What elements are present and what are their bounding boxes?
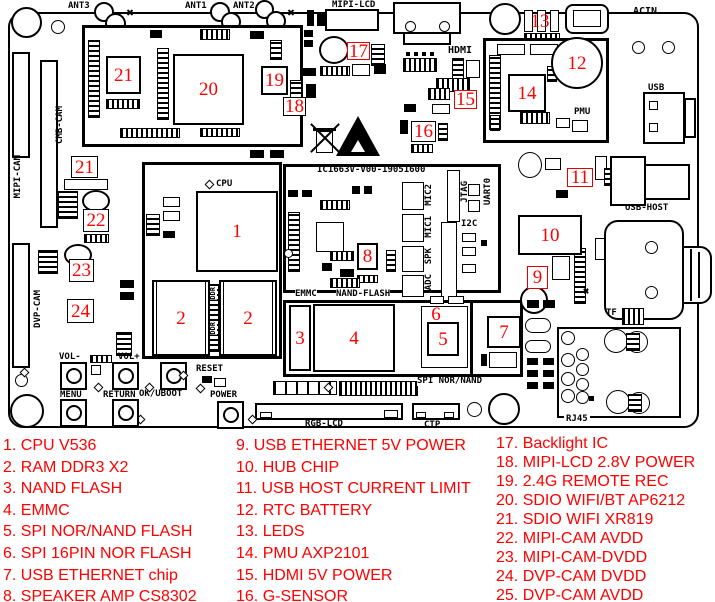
pad-strip bbox=[270, 40, 282, 60]
legend-item: 4. EMMC bbox=[3, 500, 197, 522]
dvp-cam-label: DVP-CAM bbox=[34, 290, 43, 328]
usb-pin bbox=[649, 123, 658, 132]
marker-23: 23 bbox=[69, 259, 94, 282]
legend-item: 9. USB ETHERNET 5V POWER bbox=[236, 435, 471, 457]
mipi-lcd-connector bbox=[325, 9, 379, 31]
legend-item: 13. LEDS bbox=[236, 521, 471, 543]
legend-column-2: 9. USB ETHERNET 5V POWER10. HUB CHIP11. … bbox=[236, 435, 471, 602]
connector bbox=[441, 222, 457, 302]
mic2-connector bbox=[402, 182, 424, 210]
pad-block bbox=[468, 184, 480, 196]
pad-strip bbox=[320, 66, 350, 76]
pad-strip bbox=[371, 44, 385, 66]
pad-block bbox=[468, 200, 480, 212]
legend-item: 19. 2.4G REMOTE REC bbox=[496, 472, 695, 491]
esd-triangle-inner bbox=[351, 140, 365, 152]
pad-block bbox=[352, 64, 370, 76]
rj45-pin bbox=[561, 353, 575, 367]
button-return bbox=[112, 399, 139, 427]
pad-block bbox=[489, 352, 517, 368]
pad-strip bbox=[628, 394, 642, 412]
mic1-connector bbox=[402, 214, 424, 242]
pad-strip bbox=[320, 200, 350, 210]
marker-15: 15 bbox=[454, 90, 477, 109]
connector-key bbox=[384, 410, 398, 418]
chip-hub: 10 bbox=[518, 215, 582, 255]
divider bbox=[470, 300, 473, 377]
pad-strip bbox=[490, 115, 500, 131]
pad-block bbox=[214, 378, 226, 387]
legend-column-1: 1. CPU V5362. RAM DDR3 X23. NAND FLASH4.… bbox=[3, 435, 197, 602]
ddr-label: DDR bbox=[210, 322, 217, 335]
pad bbox=[302, 190, 312, 197]
mipi-cam-label: MIPI-CAM bbox=[14, 155, 23, 198]
rj45-pin bbox=[576, 391, 589, 404]
ok-uboot-label: OK/UBOOT bbox=[139, 390, 182, 399]
pad bbox=[400, 120, 408, 134]
pad bbox=[302, 68, 316, 76]
pad-strip bbox=[626, 333, 640, 351]
pad-strip bbox=[88, 40, 100, 118]
pad-strip bbox=[438, 123, 448, 141]
x-mark-icon bbox=[583, 288, 589, 294]
pad-block bbox=[432, 104, 450, 114]
rj45-pin bbox=[576, 378, 589, 391]
marker-9: 9 bbox=[527, 266, 548, 289]
ddr-label: DDR bbox=[210, 287, 217, 300]
chip-usb-ethernet: 7 bbox=[487, 316, 521, 348]
reset-label: RESET bbox=[196, 365, 223, 374]
legend-item: 15. HDMI 5V POWER bbox=[236, 565, 471, 587]
marker-24: 24 bbox=[67, 299, 94, 323]
legend-item: 21. SDIO WIFI XR819 bbox=[496, 510, 695, 529]
uart0-label: UART0 bbox=[484, 178, 493, 205]
button-menu bbox=[60, 399, 87, 427]
pad-strip bbox=[90, 355, 112, 363]
pad bbox=[422, 52, 426, 56]
transformer bbox=[606, 390, 630, 414]
button-volume-down bbox=[60, 362, 87, 390]
legend-item: 6. SPI 16PIN NOR FLASH bbox=[3, 543, 197, 565]
cpu-label: CPU bbox=[216, 180, 232, 189]
legend-item: 17. Backlight IC bbox=[496, 434, 695, 453]
pad-block bbox=[462, 247, 476, 256]
rtc-battery: 12 bbox=[551, 37, 603, 89]
ant1-label: ANT1 bbox=[185, 2, 207, 11]
spk-connector bbox=[402, 246, 424, 272]
screw-hole bbox=[662, 41, 675, 54]
pad-block bbox=[545, 158, 561, 170]
legend-item: 7. USB ETHERNET chip bbox=[3, 565, 197, 587]
mic1-label: MIC1 bbox=[425, 216, 434, 238]
pad bbox=[543, 358, 554, 365]
pad-strip bbox=[157, 48, 169, 120]
adc-connector bbox=[402, 275, 424, 297]
camera-connector bbox=[12, 243, 30, 368]
legend-item: 5. SPI NOR/NAND FLASH bbox=[3, 521, 197, 543]
legend-item: 14. PMU AXP2101 bbox=[236, 543, 471, 565]
marker-11: 11 bbox=[567, 168, 593, 187]
chip-remote-rec: 19 bbox=[261, 66, 288, 95]
pad bbox=[288, 190, 298, 197]
legend-item: 12. RTC BATTERY bbox=[236, 500, 471, 522]
mounting-hole bbox=[488, 393, 520, 425]
chip-cpu: 1 bbox=[196, 191, 278, 272]
vol-plus-label: VOL+ bbox=[118, 353, 140, 362]
pad-block bbox=[466, 60, 480, 78]
legend-item: 24. DVP-CAM DVDD bbox=[496, 567, 695, 586]
pad-block bbox=[448, 296, 464, 304]
usb-host-port bbox=[610, 156, 646, 206]
pad bbox=[120, 292, 134, 300]
pad bbox=[406, 52, 410, 56]
via bbox=[284, 249, 293, 258]
barrel-line bbox=[698, 252, 700, 298]
chip-wifi-xr819: 21 bbox=[106, 56, 141, 94]
rj45-label: RJ45 bbox=[564, 415, 590, 424]
emmc-label: EMMC bbox=[295, 290, 317, 299]
usb-pin bbox=[649, 101, 658, 110]
cmb-cam-label: CMB-CAM bbox=[56, 106, 65, 144]
pad bbox=[481, 354, 487, 366]
led bbox=[525, 340, 551, 353]
hdmi-label: HDMI bbox=[448, 46, 472, 56]
pad-strip bbox=[428, 88, 450, 100]
chip bbox=[316, 222, 344, 252]
pad bbox=[364, 186, 372, 194]
pad-strip bbox=[120, 128, 180, 138]
pad bbox=[374, 64, 386, 74]
pad-strip bbox=[411, 144, 433, 153]
jtag-connector bbox=[447, 170, 460, 222]
camera-connector bbox=[12, 52, 30, 158]
chip-nand-flash: 3 bbox=[289, 305, 311, 371]
pad-strip bbox=[106, 99, 140, 109]
spk-label: SPK bbox=[425, 248, 434, 264]
pad-strip bbox=[146, 214, 160, 236]
legend-item: 2. RAM DDR3 X2 bbox=[3, 457, 197, 479]
pad bbox=[250, 150, 264, 158]
acin-jack-inner bbox=[573, 10, 601, 27]
audio-jack-hole bbox=[645, 286, 658, 299]
pad bbox=[304, 40, 313, 47]
button-volume-up bbox=[112, 362, 139, 390]
pad-block bbox=[552, 256, 570, 280]
pad bbox=[543, 382, 554, 389]
connector-key bbox=[416, 412, 426, 418]
nand-flash-label: NAND-FLASH bbox=[336, 290, 390, 299]
usb-port-tab bbox=[684, 98, 696, 138]
legend-item: 18. MIPI-LCD 2.8V POWER bbox=[496, 453, 695, 472]
screw-hole bbox=[632, 41, 645, 54]
chip-wifi-ap6212: 20 bbox=[173, 54, 244, 125]
pad-block bbox=[497, 44, 525, 55]
adc-label: ADC bbox=[425, 274, 434, 290]
pad-strip bbox=[200, 128, 240, 137]
pad-strip bbox=[403, 58, 437, 72]
pad-block bbox=[163, 197, 180, 207]
pad bbox=[527, 300, 539, 308]
pad bbox=[120, 280, 134, 288]
rj45-pin bbox=[561, 389, 575, 403]
pad bbox=[430, 52, 434, 56]
board-id-text: IC1663V-V00-19051600 bbox=[317, 166, 425, 175]
chip-pmu-axp2101: 14 bbox=[508, 74, 546, 112]
pad-block bbox=[595, 238, 605, 260]
button-power bbox=[217, 401, 244, 429]
pad bbox=[527, 370, 538, 377]
pad-block bbox=[462, 233, 476, 242]
pad-strip bbox=[520, 112, 550, 124]
legend-item: 20. SDIO WIFI/BT AP6212 bbox=[496, 491, 695, 510]
mounting-hole bbox=[467, 402, 482, 417]
legend-item: 1. CPU V536 bbox=[3, 435, 197, 457]
pad-strip bbox=[58, 191, 78, 219]
pad bbox=[150, 30, 162, 38]
pad-block bbox=[64, 179, 108, 190]
pad bbox=[481, 240, 487, 246]
pad-row bbox=[339, 381, 418, 396]
pad bbox=[306, 84, 316, 98]
pad bbox=[404, 104, 416, 112]
legend-item: 25. DVP-CAM AVDD bbox=[496, 586, 695, 602]
connector-key bbox=[444, 412, 454, 418]
pad-strip bbox=[288, 212, 300, 272]
rgb-lcd-connector bbox=[255, 403, 403, 420]
chip-ram-ddr3: 2 bbox=[152, 280, 210, 356]
pad bbox=[589, 396, 594, 401]
marker-13: 13 bbox=[526, 11, 554, 31]
pcb-diagram: ANT3 ANT1 ANT2 21 20 19 18 CMB-CAM MIPI-… bbox=[0, 0, 715, 602]
audio-jack-hole bbox=[645, 241, 658, 254]
pad-block bbox=[572, 120, 588, 132]
marker-16: 16 bbox=[411, 121, 436, 142]
pad-strip bbox=[524, 33, 560, 39]
legend-item: 3. NAND FLASH bbox=[3, 478, 197, 500]
pad-block bbox=[91, 365, 101, 375]
pad-strip bbox=[200, 29, 230, 40]
pad bbox=[270, 150, 284, 158]
pad bbox=[202, 376, 212, 383]
pad-strip bbox=[330, 278, 360, 288]
ant3-label: ANT3 bbox=[68, 2, 90, 11]
pad bbox=[322, 263, 332, 271]
pmu-label: PMU bbox=[574, 108, 590, 117]
rj45-pin bbox=[561, 331, 575, 345]
legend-item: 11. USB HOST CURRENT LIMIT bbox=[236, 478, 471, 500]
mounting-hole bbox=[489, 3, 521, 35]
legend-column-3: 17. Backlight IC18. MIPI-LCD 2.8V POWER1… bbox=[496, 434, 695, 602]
audio-jack bbox=[604, 220, 684, 320]
power-label: POWER bbox=[210, 391, 237, 400]
pad-strip bbox=[574, 248, 586, 304]
acin-label: ACIN bbox=[633, 7, 657, 17]
pad bbox=[250, 31, 264, 39]
legend-item: 16. G-SENSOR bbox=[236, 586, 471, 602]
pad bbox=[527, 382, 538, 389]
vol-minus-label: VOL- bbox=[59, 353, 81, 362]
led bbox=[525, 318, 551, 333]
chip-spi-flash: 5 bbox=[427, 322, 459, 356]
tf-label: TF bbox=[606, 309, 617, 318]
pad-block bbox=[430, 296, 444, 304]
marker-17: 17 bbox=[347, 42, 370, 60]
hdmi-screw-hole bbox=[405, 21, 416, 32]
pad bbox=[340, 269, 354, 277]
pad-strip bbox=[386, 250, 396, 272]
ant2-label: ANT2 bbox=[233, 2, 255, 11]
pad-strip bbox=[84, 234, 109, 243]
chip-emmc: 4 bbox=[313, 304, 395, 372]
rj45-pin bbox=[576, 363, 589, 376]
usb-host-port-tab bbox=[644, 164, 690, 200]
pad-strip bbox=[357, 275, 378, 283]
audio-jack-barrel bbox=[682, 246, 712, 304]
chip-ram-ddr3: 2 bbox=[219, 280, 277, 356]
tf-slot bbox=[622, 308, 644, 325]
pad bbox=[352, 186, 360, 194]
transformer bbox=[604, 329, 628, 353]
pad-block bbox=[556, 118, 570, 128]
backlight-inductor bbox=[319, 36, 349, 64]
mounting-hole bbox=[10, 394, 44, 428]
marker-18: 18 bbox=[283, 97, 306, 116]
camera-connector bbox=[40, 60, 58, 228]
mounting-hole bbox=[51, 20, 65, 34]
rgb-lcd-label: RGB-LCD bbox=[305, 420, 343, 429]
connector-key bbox=[260, 412, 272, 418]
marker-21b: 21 bbox=[71, 156, 98, 178]
mounting-hole bbox=[11, 7, 42, 38]
pad bbox=[317, 13, 324, 20]
chip-speaker-amp: 8 bbox=[357, 243, 378, 270]
pad bbox=[543, 300, 555, 308]
inductor bbox=[518, 152, 542, 178]
mic2-label: MIC2 bbox=[425, 184, 434, 206]
rj45-pin bbox=[576, 348, 589, 361]
pad-strip bbox=[38, 250, 58, 274]
pad bbox=[307, 10, 314, 26]
pad bbox=[163, 231, 175, 238]
marker-22: 22 bbox=[83, 209, 109, 232]
legend-item: 23. MIPI-CAM-DVDD bbox=[496, 548, 695, 567]
legend-item: 22. MIPI-CAM AVDD bbox=[496, 529, 695, 548]
pad-block bbox=[163, 211, 180, 221]
legend-item: 10. HUB CHIP bbox=[236, 457, 471, 479]
pad bbox=[304, 30, 313, 37]
rj45-pin bbox=[561, 372, 575, 386]
pad-strip bbox=[330, 251, 354, 261]
mounting-hole bbox=[15, 374, 28, 387]
hdmi-port-lower bbox=[403, 32, 451, 45]
pad bbox=[556, 190, 568, 198]
spi-nor-nand-label: SPI NOR/NAND bbox=[417, 377, 482, 386]
marker-6: 6 bbox=[426, 304, 446, 324]
x-mark-icon bbox=[126, 9, 133, 16]
pad bbox=[543, 370, 554, 377]
i2c-label: I2C bbox=[461, 220, 477, 229]
pad bbox=[414, 52, 418, 56]
hdmi-screw-hole bbox=[439, 21, 450, 32]
barrel-line bbox=[690, 249, 692, 301]
usb-port bbox=[643, 92, 685, 144]
hdmi-port bbox=[393, 2, 461, 34]
legend-item: 8. SPEAKER AMP CS8302 bbox=[3, 586, 197, 602]
pad-block bbox=[462, 264, 476, 273]
x-mark-icon bbox=[287, 9, 294, 16]
ctp-label: CTP bbox=[424, 421, 440, 430]
pad bbox=[527, 358, 538, 365]
